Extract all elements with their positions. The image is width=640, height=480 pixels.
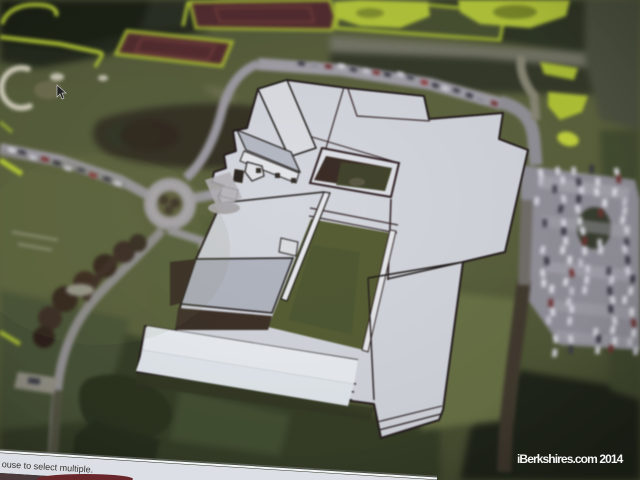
svg-text:iBerkshires.com 2014: iBerkshires.com 2014 [517,452,624,466]
